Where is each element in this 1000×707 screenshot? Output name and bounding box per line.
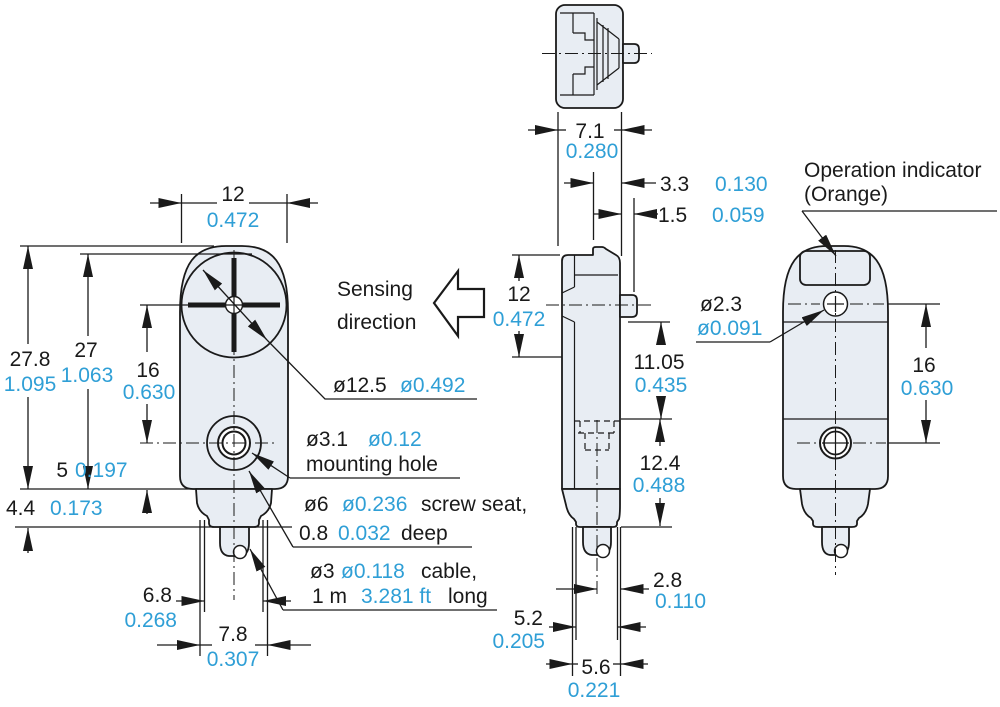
label-cable-length-inch: 3.281 ft <box>361 585 431 608</box>
label-cable-length-caption: long <box>448 585 488 608</box>
dim-front-lens-hole-mm: 16 <box>136 359 159 382</box>
back-cable-tip <box>835 545 848 558</box>
dim-top-lens-inch: 0.130 <box>715 173 768 196</box>
dim-front-hole-bottom-mm: 5 <box>56 459 68 482</box>
dim-top-lens-mm: 3.3 <box>660 173 689 196</box>
dim-side-upper-mm: 12 <box>507 283 530 306</box>
dim-front-neck-inch: 0.173 <box>50 497 103 520</box>
dim-top-tip-inch: 0.059 <box>712 204 765 227</box>
dim-front-lens-hole-inch: 0.630 <box>123 381 176 404</box>
sensing-direction-label-line1: Sensing <box>337 278 413 301</box>
dim-side-cable-outer-mm: 5.6 <box>581 656 610 679</box>
side-view <box>546 247 654 598</box>
dim-front-width-mm: 12 <box>221 183 244 206</box>
label-lens-inch: ø0.492 <box>400 374 465 397</box>
dim-front-overall-inch: 1.095 <box>4 373 57 396</box>
dim-front-cable-outer-mm: 7.8 <box>218 623 247 646</box>
dim-front-body-mm: 27 <box>74 339 97 362</box>
label-screw-depth-mm: 0.8 <box>299 522 328 545</box>
label-lens-mm: ø12.5 <box>333 374 387 397</box>
dim-side-middle-inch: 0.435 <box>635 374 688 397</box>
dim-front-cable-outer-inch: 0.307 <box>207 648 260 671</box>
dim-back-hole-distance-inch: 0.630 <box>901 377 954 400</box>
sensing-direction-arrow-icon <box>434 271 484 336</box>
label-screw-depth-caption: deep <box>401 522 448 545</box>
dim-side-lower-inch: 0.488 <box>633 474 686 497</box>
label-operation-indicator-line2: (Orange) <box>804 183 888 206</box>
top-view <box>542 5 652 108</box>
dim-front-body-inch: 1.063 <box>61 364 114 387</box>
label-mounting-mm: ø3.1 <box>306 428 348 451</box>
label-operation-indicator-line1: Operation indicator <box>804 159 981 182</box>
label-cable-inch: ø0.118 <box>341 560 405 583</box>
label-indicator-hole-inch: ø0.091 <box>697 317 762 340</box>
front-cable-tip <box>234 546 247 559</box>
dim-front-hole-bottom-inch: 0.197 <box>75 459 128 482</box>
dim-side-cable-offset-inch: 0.110 <box>655 590 706 613</box>
front-annotation-texts: ø12.5 ø0.492 ø3.1 ø0.12 mounting hole ø6… <box>299 374 527 608</box>
technical-drawing-page: 12 0.472 27.8 1.095 27 1.063 16 0.630 5 … <box>0 0 1000 707</box>
label-cable-caption: cable, <box>421 560 477 583</box>
dim-top-depth-inch: 0.280 <box>566 140 619 163</box>
side-body-outline <box>562 247 620 489</box>
sensing-direction: Sensing direction <box>337 271 484 336</box>
label-cable-length-mm: 1 m <box>312 585 347 608</box>
dim-front-cable-inner-inch: 0.268 <box>124 609 177 632</box>
dim-back-hole-distance-mm: 16 <box>912 354 935 377</box>
dim-front-overall-mm: 27.8 <box>10 348 51 371</box>
dim-side-upper-inch: 0.472 <box>493 308 546 331</box>
side-cable-tip <box>597 545 610 558</box>
side-connector-bump <box>620 295 637 317</box>
front-view <box>140 246 288 600</box>
dim-side-middle-mm: 11.05 <box>634 351 685 374</box>
label-screw-caption: screw seat, <box>421 493 527 516</box>
sensor-dimension-drawing: 12 0.472 27.8 1.095 27 1.063 16 0.630 5 … <box>0 0 1000 707</box>
label-mounting-inch: ø0.12 <box>368 428 422 451</box>
side-neck-outline <box>562 489 620 527</box>
label-indicator-hole-mm: ø2.3 <box>700 293 742 316</box>
dim-side-cable-outer-inch: 0.221 <box>568 679 621 702</box>
dim-top-tip-mm: 1.5 <box>658 204 687 227</box>
dim-side-cable-inner-inch: 0.205 <box>492 630 545 653</box>
back-view <box>783 246 888 575</box>
dim-front-neck-mm: 4.4 <box>6 497 36 520</box>
dim-side-lower-mm: 12.4 <box>640 452 681 475</box>
dim-side-cable-offset-mm: 2.8 <box>653 569 682 592</box>
dim-side-cable-inner-mm: 5.2 <box>514 607 543 630</box>
label-mounting-caption: mounting hole <box>306 453 438 476</box>
label-screw-inch: ø0.236 <box>342 493 407 516</box>
dim-front-cable-inner-mm: 6.8 <box>143 584 172 607</box>
label-screw-mm: ø6 <box>304 493 329 516</box>
label-cable-mm: ø3 <box>310 560 335 583</box>
top-body-outline <box>556 5 623 108</box>
dim-front-width-inch: 0.472 <box>207 209 260 232</box>
label-screw-depth-inch: 0.032 <box>338 522 391 545</box>
sensing-direction-label-line2: direction <box>337 311 416 334</box>
